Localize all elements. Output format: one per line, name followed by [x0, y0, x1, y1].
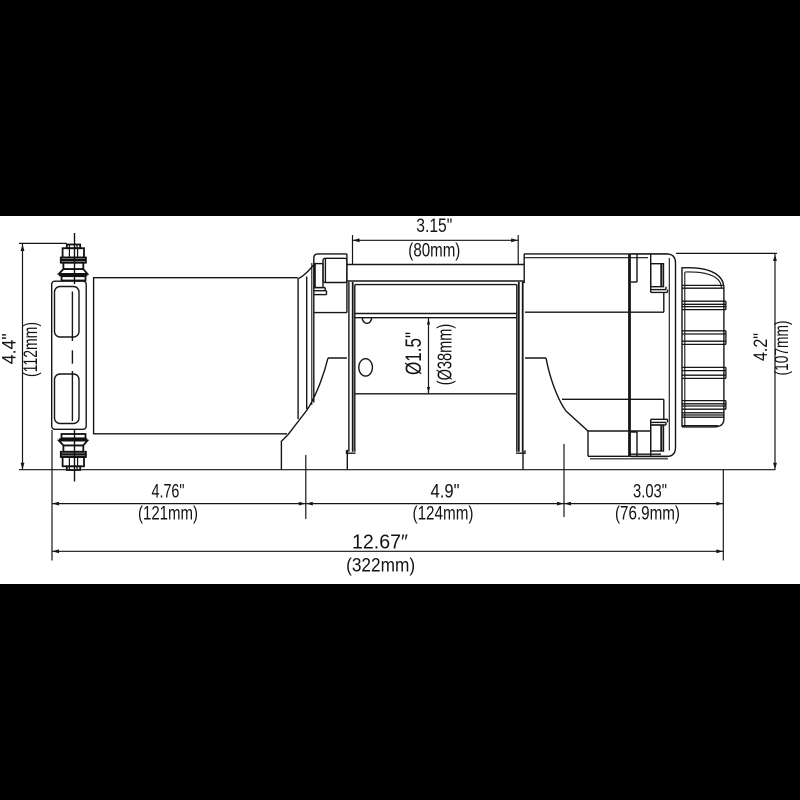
- svg-text:(121mm): (121mm): [138, 504, 198, 525]
- svg-text:(80mm): (80mm): [408, 241, 460, 262]
- svg-text:12.67″: 12.67″: [352, 532, 408, 554]
- svg-text:3.15": 3.15": [416, 216, 452, 237]
- svg-text:(107mm): (107mm): [772, 321, 793, 376]
- svg-text:4.4": 4.4": [0, 333, 21, 364]
- svg-text:4.9": 4.9": [431, 482, 460, 503]
- svg-text:(124mm): (124mm): [413, 504, 474, 525]
- svg-text:(76.9mm): (76.9mm): [615, 504, 680, 525]
- svg-text:4.76": 4.76": [152, 482, 185, 503]
- svg-text:Ø1.5": Ø1.5": [401, 332, 426, 375]
- svg-text:(112mm): (112mm): [21, 322, 42, 377]
- svg-text:(Ø38mm): (Ø38mm): [435, 324, 457, 386]
- svg-text:(322mm): (322mm): [346, 556, 415, 577]
- svg-text:4.2": 4.2": [751, 333, 772, 361]
- svg-text:3.03": 3.03": [633, 482, 667, 503]
